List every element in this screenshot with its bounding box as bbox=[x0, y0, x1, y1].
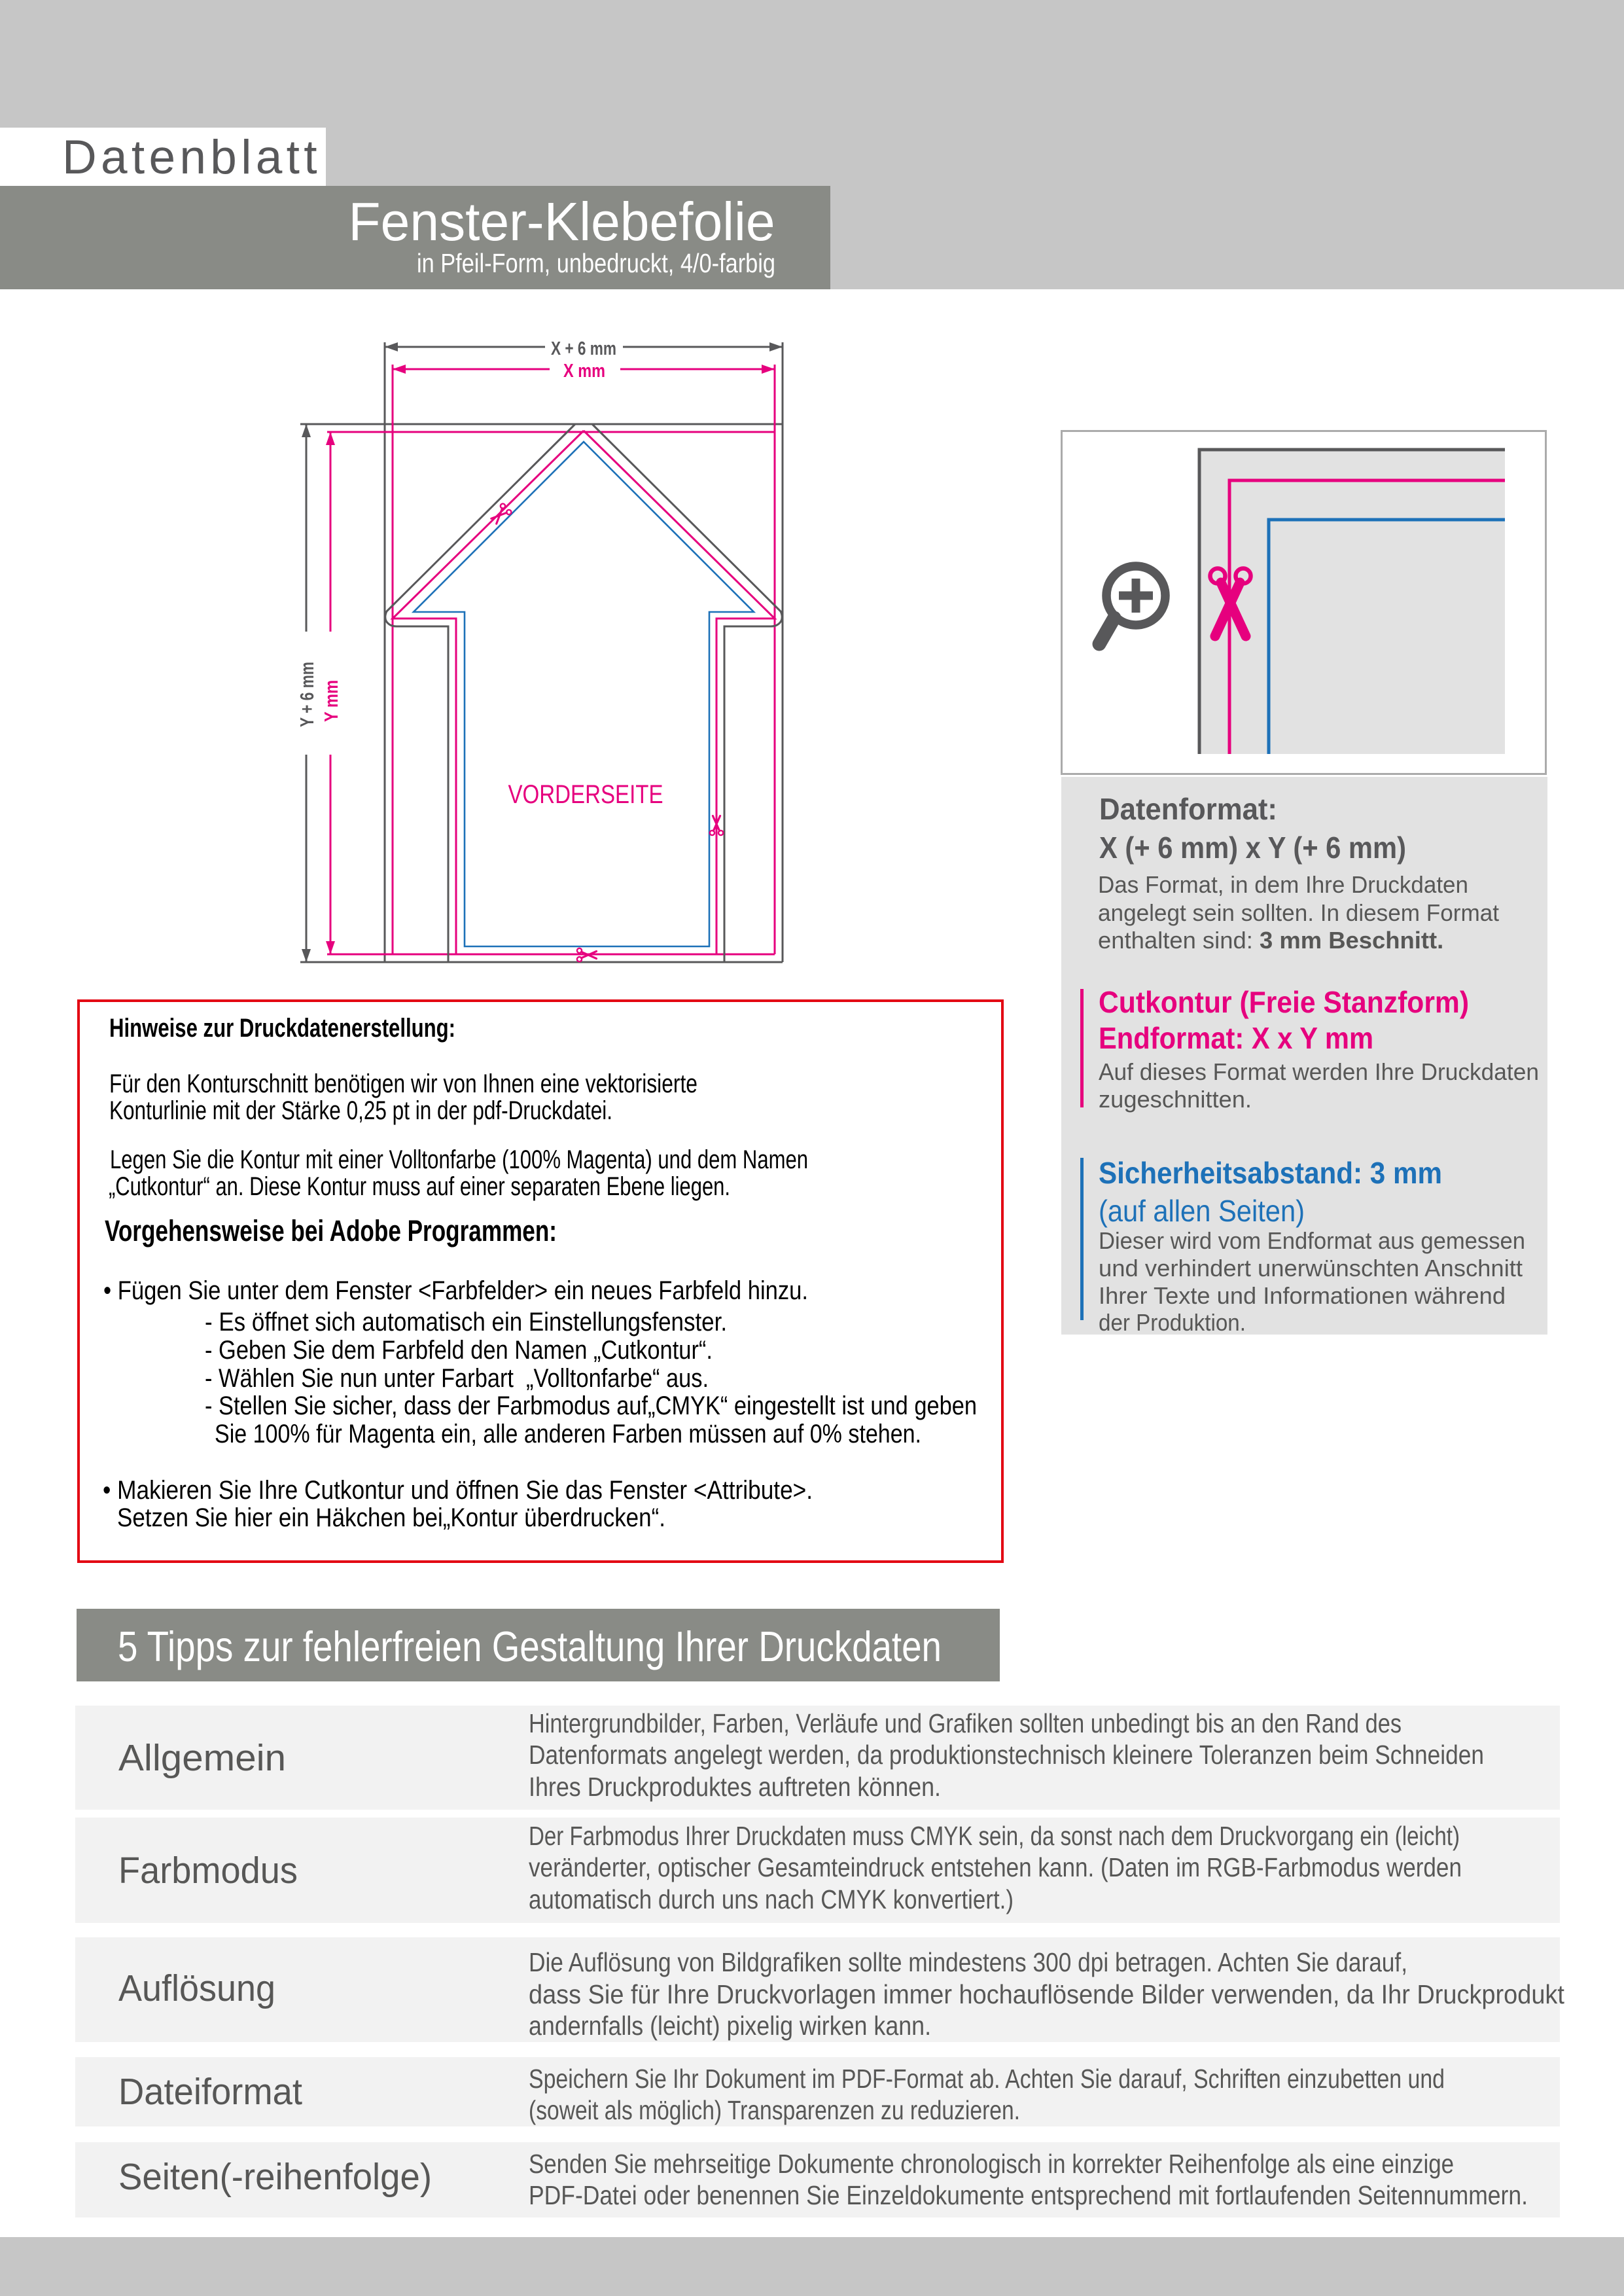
svg-text:VORDERSEITE: VORDERSEITE bbox=[508, 780, 663, 809]
svg-text:X mm: X mm bbox=[563, 361, 605, 382]
svg-text:X + 6 mm: X + 6 mm bbox=[551, 338, 616, 359]
svg-text:Y + 6 mm: Y + 6 mm bbox=[297, 662, 318, 727]
svg-text:Y mm: Y mm bbox=[321, 680, 342, 722]
